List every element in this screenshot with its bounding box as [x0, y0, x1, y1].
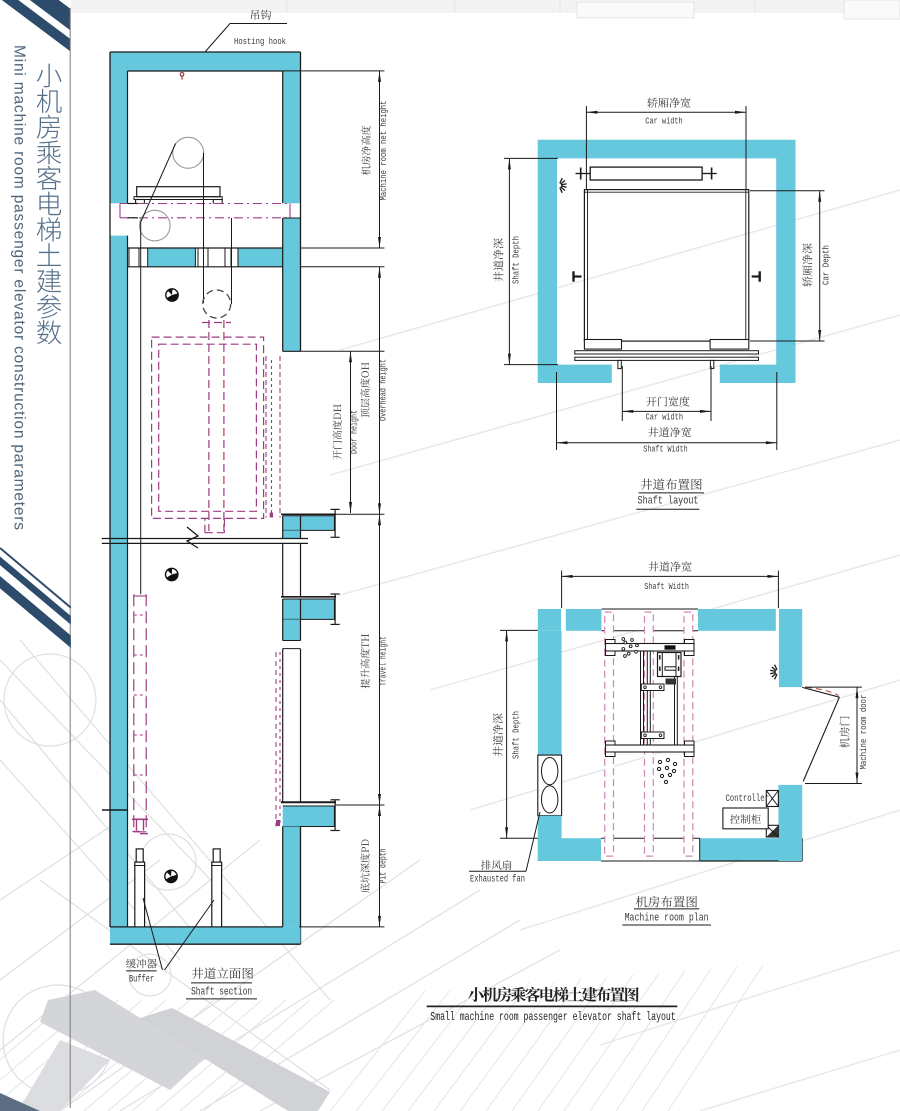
svg-text:Shaft layout: Shaft layout: [638, 496, 699, 508]
svg-text:Hosting hook: Hosting hook: [234, 36, 286, 47]
svg-text:Overhead height: Overhead height: [378, 359, 389, 421]
svg-text:Shaft section: Shaft section: [191, 987, 252, 999]
svg-text:Mini machine room passenger: Mini machine room passenger elevator con…: [11, 45, 28, 530]
svg-text:Machine room net height: Machine room net height: [378, 101, 389, 201]
svg-text:Machine room plan: Machine room plan: [625, 913, 709, 925]
svg-text:Small machine room passenger e: Small machine room passenger elevator sh…: [430, 1010, 675, 1024]
svg-text:Controller: Controller: [725, 793, 769, 805]
svg-text:Shaft Depth: Shaft Depth: [511, 711, 522, 759]
svg-text:Exhausted fan: Exhausted fan: [470, 874, 525, 886]
svg-text:Travel height: Travel height: [378, 636, 389, 686]
svg-text:Buffer: Buffer: [129, 974, 154, 986]
svg-text:Door height: Door height: [349, 410, 360, 454]
svg-text:Shaft Width: Shaft Width: [643, 444, 687, 455]
svg-text:Car Depth: Car Depth: [821, 245, 832, 285]
svg-text:Machine room door: Machine room door: [858, 695, 869, 770]
svg-text:Pit depth: Pit depth: [378, 849, 389, 884]
svg-text:Shaft Depth: Shaft Depth: [511, 236, 522, 284]
svg-text:Car width: Car width: [646, 412, 683, 423]
svg-text:Car width: Car width: [645, 116, 682, 127]
svg-text:Shaft Width: Shaft Width: [644, 581, 689, 592]
